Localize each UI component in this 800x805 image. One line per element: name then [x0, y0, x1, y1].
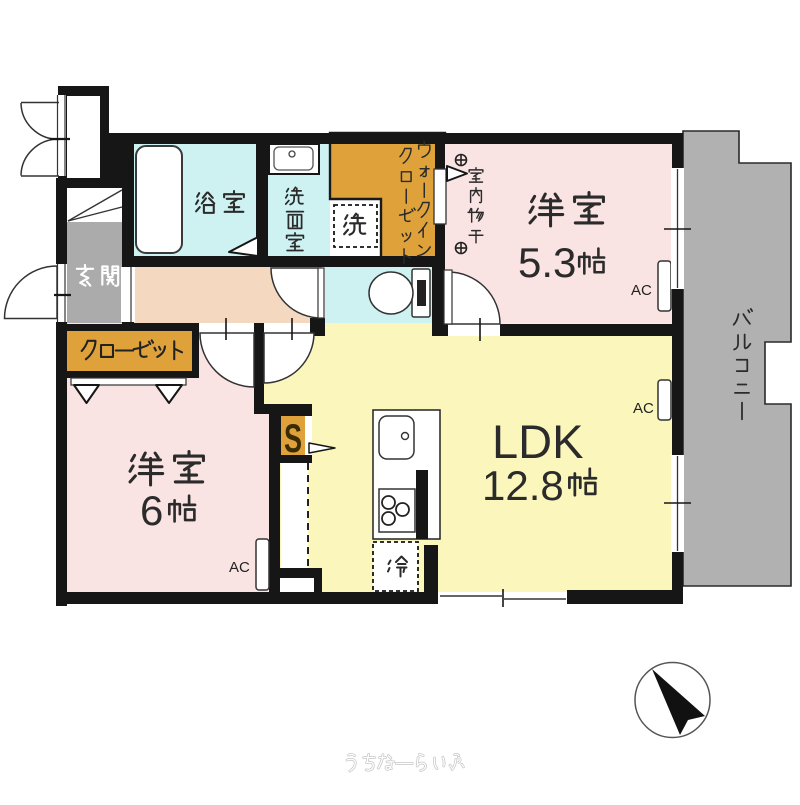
svg-text:AC: AC: [631, 282, 652, 299]
svg-text:5.3: 5.3: [518, 239, 576, 286]
svg-text:S: S: [284, 417, 302, 461]
svg-text:LDK: LDK: [492, 415, 583, 468]
svg-text:6: 6: [140, 487, 163, 534]
svg-text:AC: AC: [229, 559, 250, 576]
svg-text:AC: AC: [633, 400, 654, 417]
svg-text:12.8: 12.8: [482, 462, 564, 509]
